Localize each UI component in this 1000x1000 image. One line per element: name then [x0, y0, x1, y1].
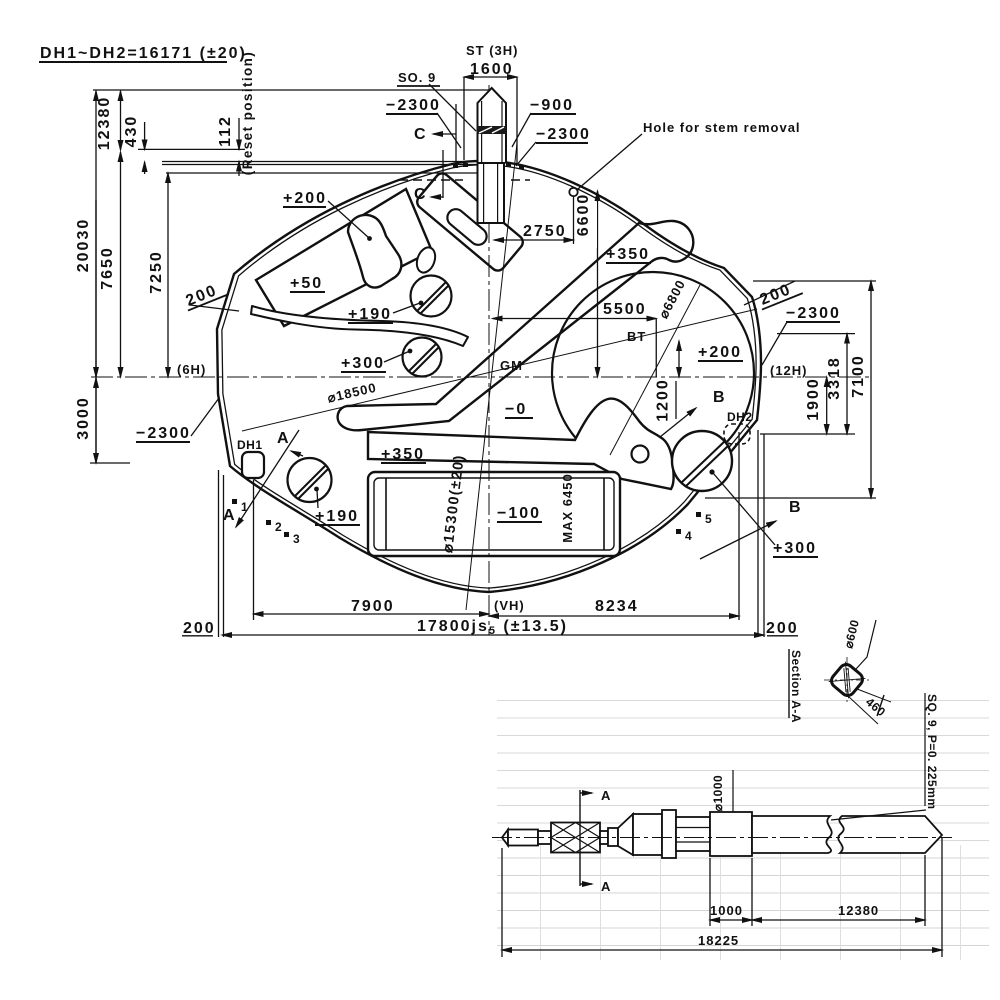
svg-text:DH2: DH2 — [727, 410, 753, 424]
svg-text:⌀6800: ⌀6800 — [656, 277, 689, 321]
svg-text:17800js5 (±13.5): 17800js5 (±13.5) — [417, 618, 568, 637]
svg-text:(Reset position): (Reset position) — [240, 51, 255, 175]
svg-text:BT: BT — [627, 329, 646, 344]
svg-text:7100: 7100 — [850, 354, 867, 398]
svg-text:(VH): (VH) — [494, 598, 525, 613]
svg-text:1000: 1000 — [710, 903, 743, 918]
svg-text:+50: +50 — [290, 275, 323, 292]
svg-text:20030: 20030 — [75, 218, 92, 273]
svg-text:−2300: −2300 — [136, 425, 191, 442]
svg-text:2750: 2750 — [523, 223, 567, 240]
svg-text:−2300: −2300 — [536, 126, 591, 143]
svg-text:(12H): (12H) — [770, 363, 808, 378]
svg-text:3318: 3318 — [826, 356, 843, 400]
svg-text:DH1~DH2=16171 (±20): DH1~DH2=16171 (±20) — [40, 45, 247, 62]
svg-text:GM: GM — [500, 358, 523, 373]
svg-text:3000: 3000 — [75, 396, 92, 440]
svg-text:−2300: −2300 — [386, 97, 441, 114]
svg-text:MAX 6450: MAX 6450 — [560, 473, 575, 542]
svg-text:3: 3 — [293, 532, 300, 546]
svg-text:+350: +350 — [381, 446, 425, 463]
svg-text:−0: −0 — [505, 401, 527, 418]
svg-text:B: B — [713, 389, 727, 406]
svg-text:SQ. 9, P=0. 225mm: SQ. 9, P=0. 225mm — [925, 694, 939, 810]
svg-text:⌀600: ⌀600 — [841, 618, 862, 650]
svg-text:−900: −900 — [530, 97, 574, 114]
svg-text:⌀18500: ⌀18500 — [326, 380, 378, 406]
svg-text:+200: +200 — [283, 190, 327, 207]
svg-text:18225: 18225 — [698, 933, 739, 948]
svg-text:−2300: −2300 — [786, 305, 841, 322]
svg-text:1200: 1200 — [655, 378, 672, 422]
svg-text:A: A — [601, 879, 611, 894]
svg-text:1600: 1600 — [470, 61, 514, 78]
svg-text:+190: +190 — [348, 306, 392, 323]
svg-text:−100: −100 — [497, 505, 541, 522]
svg-text:SO. 9: SO. 9 — [398, 70, 436, 85]
svg-text:1: 1 — [241, 500, 248, 514]
svg-text:6600: 6600 — [575, 193, 592, 237]
svg-text:430: 430 — [123, 115, 140, 148]
svg-text:1900: 1900 — [805, 377, 822, 421]
svg-text:7650: 7650 — [99, 246, 116, 290]
svg-text:12380: 12380 — [838, 903, 879, 918]
svg-text:112: 112 — [217, 115, 234, 147]
svg-text:A: A — [277, 430, 291, 447]
svg-text:ST (3H): ST (3H) — [466, 43, 519, 58]
svg-text:4: 4 — [685, 529, 692, 543]
svg-text:C: C — [414, 126, 428, 143]
svg-text:7900: 7900 — [351, 598, 395, 615]
svg-text:8234: 8234 — [595, 598, 639, 615]
svg-text:Section A-A: Section A-A — [789, 650, 803, 723]
svg-text:DH1: DH1 — [237, 438, 263, 452]
svg-text:B: B — [789, 499, 803, 516]
svg-text:+300: +300 — [341, 355, 385, 372]
svg-text:7250: 7250 — [148, 250, 165, 294]
svg-text:+300: +300 — [773, 540, 817, 557]
svg-text:+350: +350 — [606, 246, 650, 263]
svg-text:⌀1000: ⌀1000 — [711, 775, 725, 811]
svg-text:200: 200 — [183, 620, 216, 637]
svg-text:2: 2 — [275, 520, 282, 534]
svg-text:A: A — [601, 788, 611, 803]
svg-text:C: C — [414, 186, 428, 203]
svg-text:12380: 12380 — [96, 96, 113, 151]
svg-text:+200: +200 — [698, 344, 742, 361]
svg-text:(6H): (6H) — [177, 362, 206, 377]
svg-text:+190: +190 — [315, 508, 359, 525]
svg-text:5: 5 — [705, 512, 712, 526]
svg-text:A: A — [223, 507, 237, 524]
svg-text:5500: 5500 — [603, 301, 647, 318]
svg-text:Hole for stem removal: Hole for stem removal — [643, 120, 801, 135]
svg-text:200: 200 — [766, 620, 799, 637]
